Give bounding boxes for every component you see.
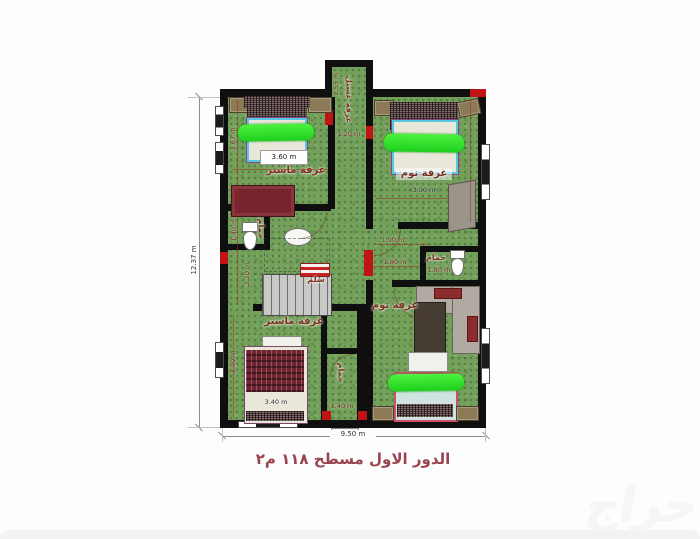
- window: [481, 328, 490, 384]
- sofa-cushion: [467, 316, 478, 342]
- column-block: [364, 250, 373, 276]
- dimension-line: [237, 100, 238, 304]
- dim-overall-width: 9.50 m: [330, 430, 376, 438]
- extension-line: [485, 428, 486, 442]
- dim-bedroom-top-width: 3.90 m: [404, 186, 444, 194]
- wall: [366, 89, 486, 97]
- dresser-white: [408, 352, 448, 372]
- window: [215, 106, 224, 136]
- dimension-line: [373, 266, 420, 267]
- bed-footboard: [397, 404, 453, 417]
- extension-line: [188, 97, 220, 98]
- highlight-strip: [384, 133, 464, 152]
- dim-stairs-height: 2.20 m: [243, 259, 251, 289]
- nightstand: [456, 406, 479, 421]
- bed-blanket: [246, 350, 304, 392]
- dim-bed-width: 3.60 m: [260, 150, 308, 165]
- dimension-line: [233, 315, 234, 418]
- room-label-laundry: غرفة غسيل: [344, 69, 353, 131]
- wall: [357, 311, 369, 420]
- dim-hall-b: 1.80 m: [378, 258, 412, 266]
- haraj-watermark: حراج: [543, 478, 700, 532]
- dresser-gray: [448, 180, 476, 233]
- room-label-bath-right: حمام: [424, 253, 448, 262]
- dim-laundry-height: 2.55 m: [332, 68, 340, 100]
- room-label-master-bottom: غرفة ماستر: [256, 316, 332, 328]
- window: [215, 342, 224, 378]
- dim-bed-bottom-width: 3.40 m: [258, 398, 294, 406]
- nightstand: [372, 406, 394, 421]
- highlight-strip: [388, 373, 464, 391]
- dimension-line: [374, 244, 430, 245]
- dim-overall-height: 12.37 m: [190, 238, 198, 282]
- column-block: [322, 411, 331, 420]
- dimension-line-vertical: [199, 97, 200, 428]
- extension-line: [222, 428, 223, 442]
- dim-bath-right-width: 1.80 m: [424, 266, 454, 274]
- extension-line: [188, 427, 220, 428]
- bed-headboard: [246, 411, 304, 421]
- column-block: [470, 89, 486, 97]
- wall: [420, 246, 478, 252]
- dim-hall-a: 1.90 m: [376, 236, 410, 244]
- nightstand: [308, 97, 332, 113]
- window: [215, 142, 224, 174]
- bottom-edge-band: [0, 530, 700, 539]
- dim-room-height: 3.67 m: [229, 122, 237, 156]
- room-label-bedroom-top: غرفة نوم: [396, 168, 452, 180]
- room-label-stairs: سلم: [302, 275, 330, 284]
- window: [481, 144, 490, 200]
- sofa-maroon: [231, 185, 295, 217]
- dimension-line: [232, 169, 328, 170]
- sofa-cushion: [434, 288, 462, 299]
- column-block: [366, 126, 373, 139]
- floor-plan-image: 3.60 m غرفة ماستر 3.67 m 1.40 m حمام سلم…: [0, 0, 700, 539]
- column-block: [358, 411, 367, 420]
- dimension-line: [470, 100, 471, 222]
- highlight-strip: [238, 123, 314, 141]
- dim-bath-bottom-width: 1.40 m: [328, 402, 356, 410]
- plan-caption: الدور الاول مسطح ١١٨ م٢: [210, 450, 496, 468]
- dim-laundry-width: 1.20 m: [334, 130, 364, 138]
- column-block: [220, 252, 228, 264]
- room-label-master-top: غرفة ماستر: [258, 165, 334, 177]
- wall: [366, 97, 373, 229]
